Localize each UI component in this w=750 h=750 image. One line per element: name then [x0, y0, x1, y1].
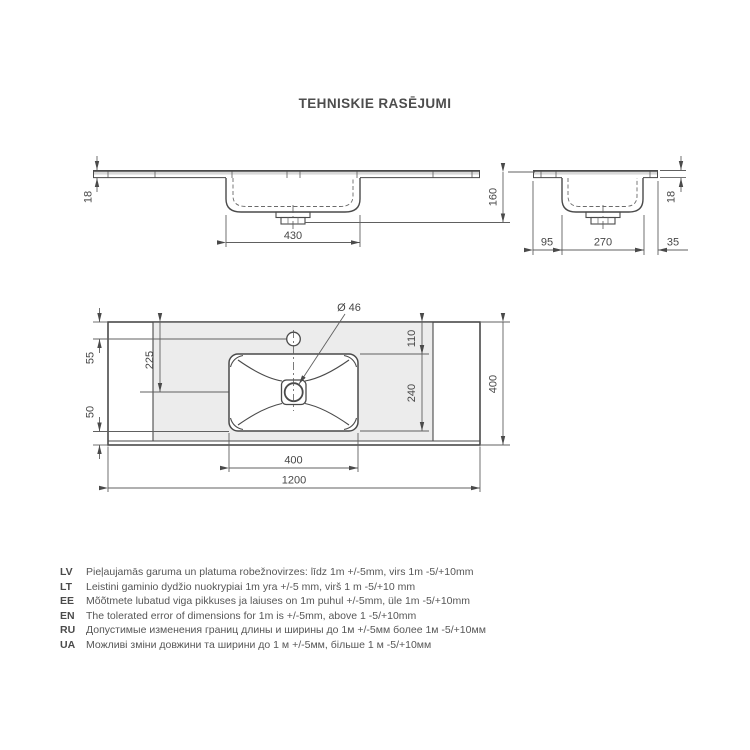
side-view: 160 18 95 270 35 [487, 156, 688, 255]
top-dim-width: 1200 [108, 447, 480, 493]
note-row-lt: LT Leistini gaminio dydžio nuokrypiai 1m… [60, 580, 700, 595]
technical-drawing-page: TEHNISKIE RASĒJUMI [0, 0, 750, 750]
svg-text:18: 18 [665, 191, 677, 203]
svg-text:35: 35 [667, 237, 679, 249]
svg-text:Ø 46: Ø 46 [337, 302, 361, 314]
top-dim-depth: 400 [481, 322, 510, 445]
top-dim-faucet-offset: 55 [84, 308, 99, 364]
note-row-ua: UA Можливі зміни довжини та ширини до 1 … [60, 638, 700, 653]
note-row-ru: RU Допустимые изменения границ длины и ш… [60, 623, 700, 638]
svg-text:110: 110 [406, 330, 418, 348]
front-dim-basin-width: 430 [226, 215, 360, 247]
note-text: Можливі зміни довжини та ширини до 1 м +… [86, 638, 431, 653]
note-text: Pieļaujamās garuma un platuma robežnovir… [86, 565, 473, 580]
svg-text:95: 95 [541, 237, 553, 249]
note-text: Mõõtmete lubatud viga pikkuses ja laiuse… [86, 594, 470, 609]
note-text: The tolerated error of dimensions for 1m… [86, 609, 416, 624]
top-dim-front-margin: 50 [84, 406, 99, 459]
top-view: 55 50 225 110 240 [84, 302, 510, 492]
svg-text:270: 270 [594, 237, 612, 249]
svg-text:240: 240 [406, 384, 418, 402]
svg-text:55: 55 [84, 352, 96, 364]
front-dim-thickness: 18 [82, 156, 97, 203]
front-view: 18 430 [82, 156, 510, 247]
svg-text:430: 430 [284, 230, 302, 242]
svg-text:1200: 1200 [282, 475, 306, 487]
note-row-en: EN The tolerated error of dimensions for… [60, 609, 700, 624]
svg-text:160: 160 [487, 188, 499, 206]
svg-text:50: 50 [84, 406, 96, 418]
svg-text:400: 400 [284, 455, 302, 467]
side-basin-inner-dashed [568, 178, 637, 207]
side-dim-height: 160 [487, 172, 535, 223]
drawing-canvas: 18 430 [0, 0, 750, 520]
note-lang-label: EE [60, 594, 86, 609]
note-lang-label: RU [60, 623, 86, 638]
note-text: Leistini gaminio dydžio nuokrypiai 1m yr… [86, 580, 415, 595]
tolerance-notes: LV Pieļaujamās garuma un platuma robežno… [60, 565, 700, 653]
front-basin-inner-dashed [233, 178, 353, 207]
page-title: TEHNISKIE RASĒJUMI [0, 96, 750, 111]
note-row-lv: LV Pieļaujamās garuma un platuma robežno… [60, 565, 700, 580]
note-lang-label: EN [60, 609, 86, 624]
svg-text:400: 400 [487, 375, 499, 393]
side-dim-thickness: 18 [660, 156, 686, 203]
svg-text:18: 18 [82, 191, 94, 203]
note-text: Допустимые изменения границ длины и шири… [86, 623, 486, 638]
note-lang-label: UA [60, 638, 86, 653]
note-lang-label: LT [60, 580, 86, 595]
svg-text:225: 225 [144, 351, 156, 369]
note-row-ee: EE Mõõtmete lubatud viga pikkuses ja lai… [60, 594, 700, 609]
note-lang-label: LV [60, 565, 86, 580]
